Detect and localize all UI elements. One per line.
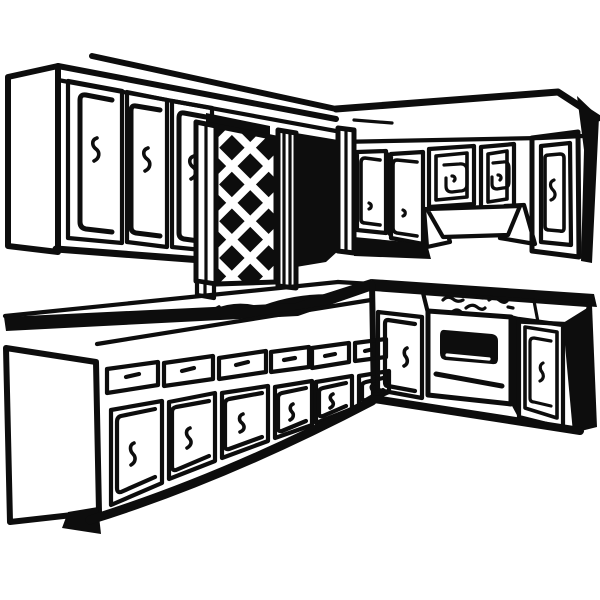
counter-edge-left bbox=[4, 279, 373, 331]
door-handle bbox=[187, 428, 192, 448]
cabinet-door bbox=[519, 319, 563, 428]
drawer bbox=[312, 343, 349, 368]
cornice-step-line bbox=[354, 120, 392, 123]
cabinet-side-panel bbox=[8, 66, 58, 252]
door-panel bbox=[391, 152, 423, 244]
door-handle bbox=[93, 138, 99, 161]
cabinet-side-panel bbox=[6, 348, 99, 522]
drawer bbox=[107, 362, 158, 393]
lattice-cabinet bbox=[196, 113, 296, 298]
door-inner-frame bbox=[80, 95, 112, 232]
door-handle bbox=[131, 443, 136, 465]
drawer bbox=[164, 356, 213, 386]
base-cabinets-left bbox=[6, 300, 389, 534]
base-bottom-edge bbox=[90, 401, 372, 520]
door-handle bbox=[144, 148, 150, 171]
drawer bbox=[219, 351, 266, 379]
drawer-handle bbox=[325, 354, 335, 356]
base-cabinets-right bbox=[374, 305, 597, 433]
drawer bbox=[271, 347, 309, 372]
drawer-handle bbox=[365, 349, 374, 351]
cabinet-door-wide bbox=[532, 132, 579, 257]
burner-squiggle bbox=[508, 307, 513, 308]
door-inner-frame bbox=[225, 393, 262, 449]
cabinet-door bbox=[169, 393, 215, 479]
burner-squiggle bbox=[478, 297, 483, 298]
door-handle bbox=[240, 414, 245, 432]
door-handle bbox=[330, 394, 333, 408]
door-handle bbox=[369, 203, 371, 209]
cabinet-door bbox=[68, 81, 122, 243]
drawer bbox=[355, 339, 386, 361]
cornice-top-line bbox=[58, 66, 336, 119]
cabinet-door bbox=[378, 312, 422, 398]
cabinet-door bbox=[127, 92, 167, 247]
cabinet-end-shadow bbox=[563, 305, 597, 433]
cornice-top-edge bbox=[336, 92, 598, 118]
drawer-handle bbox=[182, 368, 194, 371]
door-handle bbox=[403, 210, 405, 216]
door-handle bbox=[290, 404, 293, 420]
door-handle bbox=[498, 175, 501, 180]
oven bbox=[428, 311, 511, 404]
door-inner-frame bbox=[117, 409, 155, 492]
lattice-panel bbox=[216, 126, 276, 284]
cabinet-door bbox=[357, 151, 386, 233]
cabinet-door-framed bbox=[429, 146, 474, 207]
cabinet-door bbox=[111, 401, 162, 505]
lattice-column bbox=[278, 130, 296, 288]
drawer-handle bbox=[236, 362, 248, 365]
door-handle bbox=[371, 385, 373, 391]
door-handle bbox=[404, 348, 407, 366]
cabinet-door bbox=[391, 152, 423, 244]
drawer-handle bbox=[284, 358, 295, 360]
kitchen-clipart bbox=[0, 0, 600, 600]
door-handle bbox=[551, 180, 556, 200]
range-hood-valance bbox=[424, 205, 535, 247]
door-inner-frame bbox=[361, 158, 380, 225]
door-inner-frame bbox=[393, 160, 417, 236]
valance-band bbox=[427, 206, 520, 237]
door-handle bbox=[540, 363, 543, 381]
cabinet-door-framed bbox=[481, 144, 514, 208]
upper-cabinets-right bbox=[336, 92, 599, 263]
door-inner-frame bbox=[172, 401, 209, 470]
kitchen-illustration bbox=[0, 0, 600, 600]
corner-shadow bbox=[296, 133, 338, 267]
door-handle bbox=[452, 176, 455, 181]
drawer-handle bbox=[126, 374, 139, 377]
cabinet-door bbox=[222, 386, 268, 458]
